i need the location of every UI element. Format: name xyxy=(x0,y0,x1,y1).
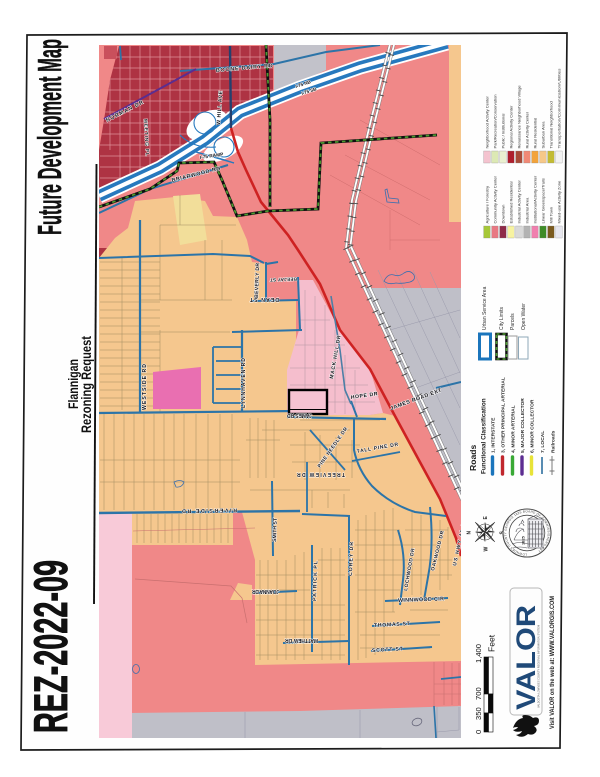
svg-text:Visit VALOR on the web at: WWW: Visit VALOR on the web at: WWW.VALORGIS.… xyxy=(550,596,556,729)
svg-text:VALDOSTA-LOWNDES COUNTY REGION: VALDOSTA-LOWNDES COUNTY REGIONAL INFORMA… xyxy=(537,625,541,708)
svg-text:Agriculture / Forestry: Agriculture / Forestry xyxy=(484,185,489,224)
svg-text:0: 0 xyxy=(474,730,483,734)
svg-text:Feet: Feet xyxy=(487,634,497,652)
svg-text:MATTHEW DR: MATTHEW DR xyxy=(285,637,318,643)
svg-text:7, LOCAL: 7, LOCAL xyxy=(540,431,546,453)
svg-text:DEAN ST: DEAN ST xyxy=(249,296,279,302)
svg-text:Roads: Roads xyxy=(468,445,478,471)
svg-text:VALOR: VALOR xyxy=(511,605,541,710)
svg-text:Rezoning Request: Rezoning Request xyxy=(78,336,94,433)
svg-text:Functional Classification: Functional Classification xyxy=(481,398,488,474)
svg-text:Transitional Neighborhood: Transitional Neighborhood xyxy=(548,101,553,148)
svg-text:Linear Greenspace/Trails: Linear Greenspace/Trails xyxy=(540,178,545,223)
svg-text:5, MAJOR COLLECTOR: 5, MAJOR COLLECTOR xyxy=(520,398,526,453)
svg-text:1825: 1825 xyxy=(521,535,526,545)
svg-text:Transportation/Communication/U: Transportation/Communication/Utilities xyxy=(556,69,561,149)
svg-text:Suburban Area: Suburban Area xyxy=(540,121,545,149)
svg-text:Renaissance Neighborhood Villa: Renaissance Neighborhood Village xyxy=(516,85,521,149)
svg-text:Future Development Map: Future Development Map xyxy=(31,39,68,235)
svg-text:Rural Residential: Rural Residential xyxy=(532,118,537,149)
svg-text:Regional Activity Center: Regional Activity Center xyxy=(508,105,513,149)
svg-text:Rural Activity Center: Rural Activity Center xyxy=(524,111,529,148)
svg-text:Mill Town: Mill Town xyxy=(548,207,553,224)
svg-text:Open Water: Open Water xyxy=(521,303,527,330)
svg-text:700: 700 xyxy=(474,687,483,700)
svg-text:Urban Service Area: Urban Service Area xyxy=(482,286,488,330)
svg-text:1,400: 1,400 xyxy=(474,644,483,663)
svg-text:Downtown: Downtown xyxy=(500,205,505,224)
svg-text:Community Activity Center: Community Activity Center xyxy=(492,175,497,223)
svg-text:Neighborhood Activity Center: Neighborhood Activity Center xyxy=(484,95,489,148)
svg-text:N: N xyxy=(467,531,473,535)
svg-text:RIVERSIDE RD: RIVERSIDE RD xyxy=(182,507,237,514)
svg-text:W: W xyxy=(484,547,490,552)
svg-text:Industrial Area: Industrial Area xyxy=(524,197,529,224)
svg-text:JOANNA DR: JOANNA DR xyxy=(252,588,279,594)
svg-text:LYNNHAVEN RD: LYNNHAVEN RD xyxy=(241,358,247,408)
svg-text:1, INTERSTATE: 1, INTERSTATE xyxy=(491,417,497,453)
svg-text:JAMES RD: JAMES RD xyxy=(287,412,312,418)
svg-text:6, MINOR COLLECTOR: 6, MINOR COLLECTOR xyxy=(530,399,536,453)
svg-text:Railroads: Railroads xyxy=(551,430,557,453)
svg-text:Institutional/Activity Center: Institutional/Activity Center xyxy=(532,175,537,223)
svg-text:Established Residential: Established Residential xyxy=(508,181,513,223)
svg-text:Public / Institutional: Public / Institutional xyxy=(500,114,505,149)
svg-text:Parcels: Parcels xyxy=(510,313,516,330)
svg-text:City Limits: City Limits xyxy=(499,306,505,330)
svg-text:SMITH ST: SMITH ST xyxy=(272,517,279,542)
svg-text:TREEVIEW DR: TREEVIEW DR xyxy=(297,471,345,477)
svg-text:REZ-2022-09: REZ-2022-09 xyxy=(24,560,77,733)
svg-text:3, OTHER PRINCIPAL ARTERIAL: 3, OTHER PRINCIPAL ARTERIAL xyxy=(501,377,507,453)
svg-text:Park/Recreation/Conservation: Park/Recreation/Conservation xyxy=(492,94,497,148)
svg-text:Industrial Activity Center: Industrial Activity Center xyxy=(516,179,521,223)
svg-text:COREY DR: COREY DR xyxy=(348,542,355,576)
svg-text:350: 350 xyxy=(474,707,483,720)
svg-text:Mixed-use Activity Zone: Mixed-use Activity Zone xyxy=(556,180,561,223)
svg-text:BEVERLY DR: BEVERLY DR xyxy=(254,263,261,298)
svg-text:4, MINOR ARTERIAL: 4, MINOR ARTERIAL xyxy=(511,405,517,453)
svg-text:BEEJAY ST: BEEJAY ST xyxy=(270,277,297,283)
svg-text:WESTSIDE RD: WESTSIDE RD xyxy=(142,364,148,410)
